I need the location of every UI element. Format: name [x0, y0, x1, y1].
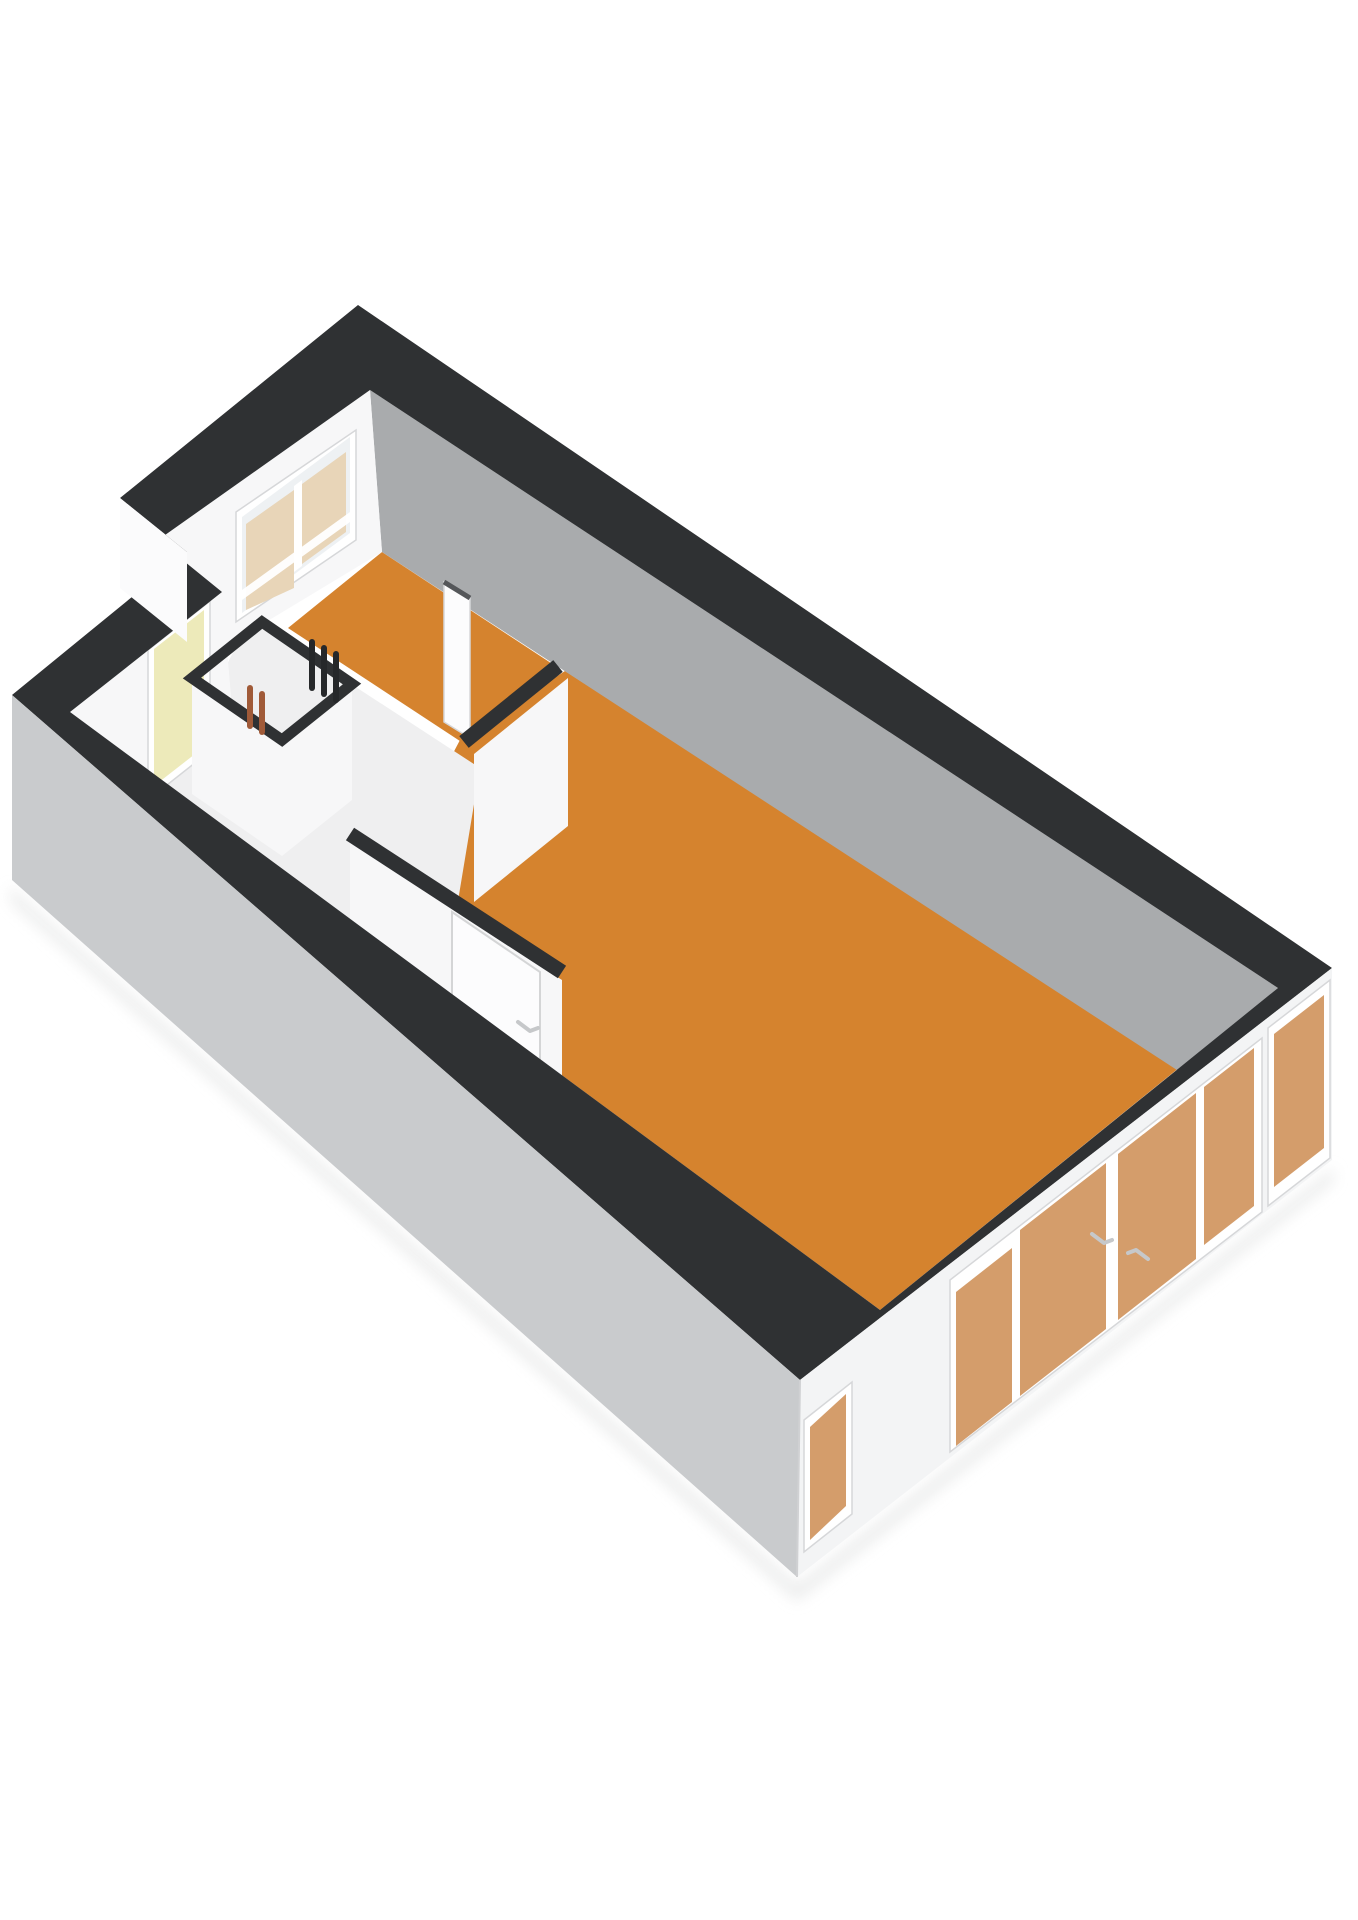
window-center-mullion — [294, 480, 302, 572]
floorplan-canvas — [0, 0, 1358, 1920]
open-door-leaf — [444, 582, 470, 738]
floorplan-3d-svg — [0, 0, 1358, 1920]
door-leaf-panel — [444, 582, 470, 738]
